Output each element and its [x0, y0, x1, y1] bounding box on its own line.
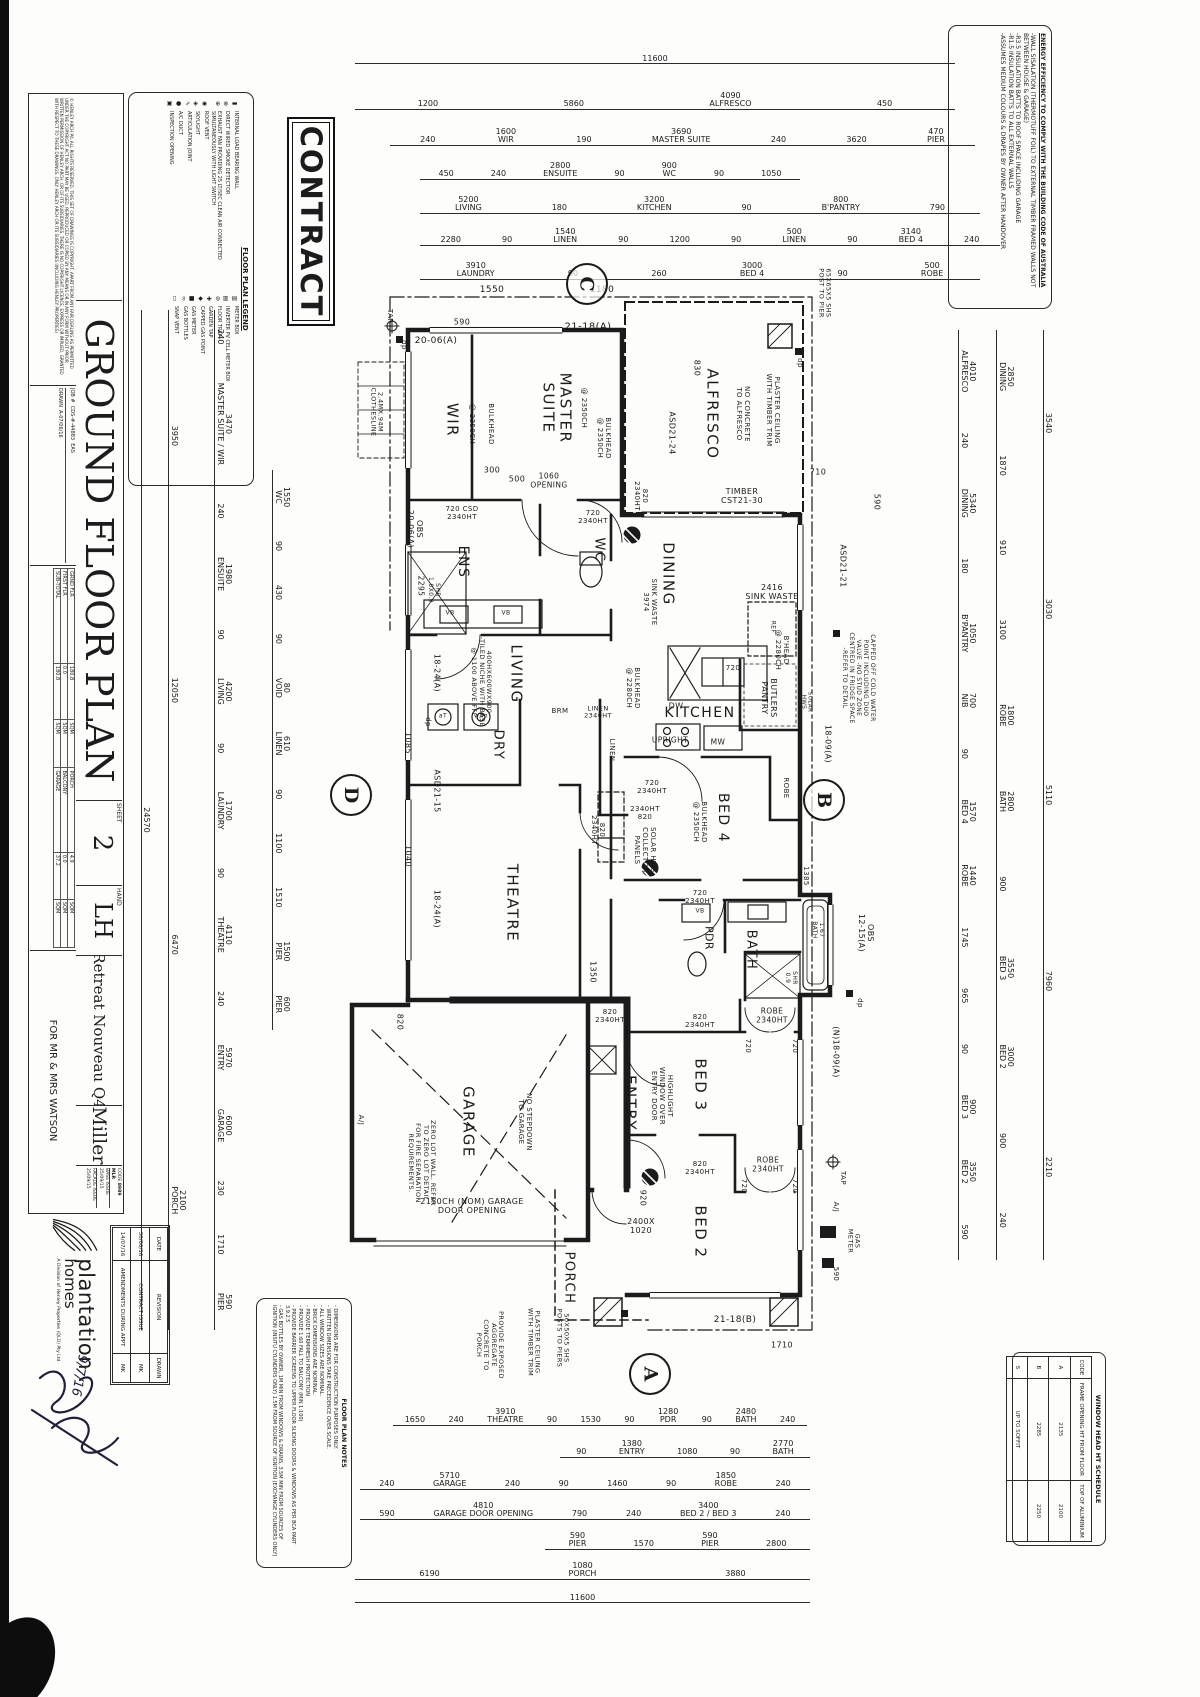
window-schedule-header: CODE — [1070, 1357, 1091, 1379]
plan-label: TAP — [386, 309, 394, 323]
dimension-label: 800 B'PANTRY — [820, 196, 862, 213]
plan-label: NO CONCRETE TO ALFRESCO — [735, 386, 751, 442]
section-marker-A: A — [629, 1353, 671, 1395]
plan-label: 820 2340HT — [595, 1008, 625, 1024]
inspection-icon: ▣ — [166, 99, 173, 108]
plan-label: WC — [591, 538, 606, 563]
dimension-chain: 11600 — [355, 1594, 810, 1603]
plan-label: w/m — [474, 714, 488, 721]
legend-item-label: GARDEN TAP — [206, 306, 212, 338]
dimension-label: 90 — [215, 741, 223, 755]
plan-label: ZERO LOT WALL. REFER TO ZERO LOT DETAIL … — [406, 1120, 436, 1206]
plan-label: 1.67 BATH — [810, 921, 824, 939]
plan-label: 1040 — [403, 845, 412, 867]
legend-item-label: EXHAUST FAN PROVIDING 25 LT/SEC CLEAN AI… — [209, 111, 221, 284]
revision-header: REVISION — [149, 1261, 167, 1354]
section-marker-letter: B — [813, 792, 835, 808]
dimension-label: 1700 LAUNDRY — [215, 790, 232, 832]
plan-label: ROBE 2340HT — [756, 1007, 788, 1024]
window-schedule-cell: B — [1028, 1357, 1049, 1379]
plan-label: BUTLERS PANTRY — [760, 678, 778, 717]
dimension-chain: 2405710 GARAGE240901460901850 ROBE240 — [360, 1472, 810, 1490]
dimension-label: 180 — [959, 556, 967, 575]
hand-value: LH — [91, 886, 115, 955]
legend-item: ◉ROOF VENT — [201, 99, 208, 284]
dimension-label: 3550 BED 3 — [997, 954, 1014, 982]
dimension-label: 1080 — [675, 1448, 699, 1456]
dimension-label: 90 — [215, 866, 223, 880]
plan-label: TIMBER CST21-30 — [721, 487, 763, 505]
area-cell: BALCONY — [61, 768, 68, 852]
dimension-label: 1540 LINEN — [551, 228, 579, 245]
dimension-label: 240 — [959, 431, 967, 450]
window-schedule-cell: UP TO SOFFIT — [1007, 1378, 1028, 1480]
plan-label: B'HEAD @ 2280CH — [774, 630, 790, 670]
legend-item-label: SKYLIGHT — [193, 111, 199, 135]
dimension-label: 3550 BED 2 — [959, 1158, 976, 1186]
plan-label: DRY — [490, 730, 505, 761]
window-schedule-cell: 2250 — [1028, 1481, 1049, 1542]
dimension-chain: 3910 LAUNDRY902603000 BED 490500 ROBE — [420, 262, 980, 280]
plan-label: 1350 — [588, 961, 597, 983]
capped-gas-icon: ◆ — [197, 294, 204, 303]
gas-meter-icon: ■ — [188, 294, 195, 303]
floor-trap-icon: ⊘ — [214, 294, 221, 303]
dimension-chain: 1550 WC904309080 VOID610 LINEN9011001510… — [272, 470, 290, 1030]
revision-header: DRAWN — [149, 1354, 167, 1383]
legend-item: ◆CAPPED GAS POINT — [197, 294, 204, 479]
dimension-label: 24570 — [142, 805, 150, 834]
dimension-label: 3000 BED 4 — [738, 262, 766, 279]
area-cell: SUB-TOTAL — [54, 569, 61, 664]
legend-item: ▮INTERNAL LOAD BEARING WALL — [231, 99, 238, 284]
dimension-label: 240 — [773, 1480, 792, 1488]
plan-label: DW — [669, 701, 684, 710]
plan-label: VB — [695, 909, 704, 916]
dimension-label: 90 — [616, 236, 630, 244]
plan-label: 500 — [509, 474, 525, 483]
dimension-label: 4810 GARAGE DOOR OPENING — [431, 1502, 535, 1519]
plan-label: ASD21-15 — [432, 769, 441, 812]
plan-label: 2340HT 820 — [630, 805, 660, 821]
floor-plan-sheet: CONTRACT FLOOR PLAN LEGEND ▮INTERNAL LOA… — [0, 0, 1200, 1697]
legend-item: ■GAS METER — [188, 294, 195, 479]
dimension-chain: 11600 — [355, 55, 955, 64]
plan-label: LIVING — [507, 644, 524, 703]
dimension-label: 965 — [959, 986, 967, 1005]
window-head-schedule: WINDOW HEAD HT SCHEDULE CODEFRAME OPENIN… — [1012, 1352, 1106, 1546]
plan-label: BULKHEAD @ 2280CH — [625, 667, 641, 708]
area-cell: 4.9 — [68, 852, 75, 899]
plan-label: 21-18(B) — [714, 1315, 757, 1325]
dimension-label: 3540 — [1044, 411, 1052, 435]
dimension-chain: 5904810 GARAGE DOOR OPENING7902403400 BE… — [360, 1502, 810, 1520]
section-marker-C: C — [566, 263, 608, 305]
section-marker-B: B — [803, 779, 845, 821]
dimension-label: 1080 PORCH — [567, 1562, 599, 1579]
plan-label: 720 — [791, 1039, 799, 1054]
contract-stamp: CONTRACT — [287, 117, 335, 326]
dimension-label: 3000 BED 2 — [997, 1042, 1014, 1070]
dimension-label: 4200 LIVING — [215, 676, 232, 707]
plan-label: OBS 12-15(A) — [857, 914, 875, 952]
dimension-chain: 2280901540 LINEN90120090500 LINEN903140 … — [420, 228, 1000, 246]
plan-label: 590 — [832, 1267, 840, 1282]
plan-label: NO STEPDOWN TO GARAGE — [517, 1093, 533, 1151]
plan-label: 2400X 1020 — [627, 1217, 655, 1235]
energy-note-title: ENERGY EFFICIENCY TO COMPLY WITH THE BUI… — [1038, 33, 1046, 301]
plan-label: ROBE 2340HT — [752, 1156, 784, 1173]
dimension-label: 3100 — [997, 618, 1005, 642]
dimension-label: 4010 ALFRESCO — [959, 348, 976, 394]
plan-label: A/J — [357, 1115, 365, 1125]
dimension-label: 1380 ENTRY — [617, 1440, 647, 1457]
legend-item-label: METER BOX — [232, 306, 238, 335]
plan-label: PLASTER CEILING WITH TIMBER TRIM — [526, 1308, 541, 1376]
floor-plan-note-line: PROVIDE 1:60 FALL TO BALCONY (MIN 1:100) — [297, 1305, 303, 1561]
plan-label: 20-06(A) — [415, 336, 458, 346]
client-name: FOR MR & MRS WATSON — [48, 1020, 59, 1142]
dimension-chain: 16502403910 THEATRE901530901280 PDR90248… — [393, 1408, 807, 1426]
skylight-icon: ◈ — [192, 99, 199, 108]
checked-by: EAS — [69, 443, 75, 453]
plan-label: BATH — [743, 930, 758, 971]
sheet-title: GROUND FLOOR PLAN — [77, 318, 121, 782]
base-issue-value: 25/09/15 — [98, 1168, 103, 1189]
plan-label: 2416 SINK WASTE — [745, 583, 798, 601]
plan-label: ASD21-24 — [667, 411, 676, 454]
plan-label: 710 — [810, 467, 826, 476]
plan-label: ASD21-21 — [838, 544, 847, 587]
gas-bottles-icon: ∞ — [179, 294, 186, 303]
plan-label: HIGHLIGHT WINDOW OVER ENTRY DOOR — [650, 1067, 674, 1125]
plan-label: ALFRESCO — [703, 369, 720, 460]
dimension-label: 11600 — [568, 1594, 597, 1602]
plan-label: VB — [501, 611, 510, 618]
dimension-label: 3140 BED 4 — [897, 228, 925, 245]
dimension-label: 90 — [845, 236, 859, 244]
plan-label: LINEN 2340HT — [584, 706, 612, 721]
plan-label: BED 3 — [691, 1058, 708, 1111]
dimension-label: 7960 — [1044, 969, 1052, 993]
contract-stamp-label: CONTRACT — [294, 126, 328, 318]
plan-label: 18-24(A) — [432, 654, 441, 692]
articulation-icon: ∿ — [184, 99, 191, 108]
dimension-label: 590 PIER — [215, 1291, 232, 1313]
window-schedule-title: WINDOW HEAD HT SCHEDULE — [1094, 1356, 1102, 1542]
dimension-label: 1050 — [759, 170, 783, 178]
section-marker-letter: D — [340, 787, 362, 803]
plan-label: MW — [711, 739, 726, 748]
dimension-label: 900 — [997, 874, 1005, 893]
dimension-label: 5200 LIVING — [453, 196, 484, 213]
dimension-label: 900 — [997, 1131, 1005, 1150]
floor-plan-note-line: DIMENSIONS ARE FOR CONSTRUCTION PURPOSES… — [332, 1305, 338, 1561]
dimension-label: 240 — [215, 501, 223, 520]
dimension-label: 3880 — [723, 1570, 747, 1578]
area-cell: 37.2 — [54, 852, 61, 899]
legend-item: ✚GARDEN TAP — [205, 294, 212, 479]
dimension-label: 1510 — [273, 885, 281, 909]
plan-label: BULKHEAD — [487, 403, 495, 444]
area-cell: 0.0 — [61, 663, 68, 719]
dimension-label: 1280 PDR — [656, 1408, 680, 1425]
plan-label: PROVIDE EXPOSED AGGREGATE CONCRETE TO PO… — [474, 1311, 504, 1379]
ac-duct-icon: ● — [175, 99, 182, 108]
dimension-chain: 61901080 PORCH3880 — [355, 1562, 810, 1580]
plan-label: 2.4MX.94M CLOTHESLINE — [369, 387, 384, 436]
fan-icon: ⊕ — [214, 99, 221, 108]
title-block-side: © HENLEY ARCH P/L ALL RIGHTS RESERVED. T… — [30, 95, 76, 1210]
dimension-label: 1100 — [273, 831, 281, 855]
dimension-label: 1570 — [632, 1540, 656, 1548]
legend-item-label: GAS METER — [189, 306, 195, 335]
floor-plan-note-line: GAS BOTTLES BY OWNER, 1M MIN FROM WINDOW… — [271, 1305, 283, 1561]
section-marker-letter: C — [576, 276, 598, 291]
plan-label: SINK WASTE 3974 — [642, 578, 658, 625]
drawn-label: DRAWN — [58, 388, 64, 407]
legend-item: ◈SKYLIGHT — [192, 99, 199, 284]
plan-label: BULKHEAD @ 2350CH — [596, 417, 612, 458]
facade-name: Miller — [88, 1106, 110, 1164]
dimension-label: 3030 — [1044, 597, 1052, 621]
facade-issue-label: FACADE ISSUE — [91, 1168, 96, 1201]
dimension-label: 2100 PORCH — [169, 1184, 186, 1216]
plan-label: WIR — [443, 403, 460, 437]
dimension-label: 430 — [273, 583, 281, 602]
plan-label: 720 — [740, 1179, 748, 1194]
dimension-label: 2480 BATH — [733, 1408, 758, 1425]
design-name: Retreat Nouveau Q4 — [90, 955, 108, 1105]
dimension-label: 1870 — [997, 453, 1005, 477]
dimension-label: 450 — [437, 170, 456, 178]
job-number: CDS-#-44883 — [69, 406, 75, 440]
dimension-label: 90 — [728, 1448, 742, 1456]
dimension-label: 90 — [557, 1480, 571, 1488]
dimension-chain: 120058604090 ALFRESCO450 — [355, 92, 955, 110]
window-schedule-cell: A — [1049, 1357, 1070, 1379]
plan-label: UPRIGHT — [652, 737, 688, 746]
dimension-chain: 35403030511079602210 — [1043, 330, 1052, 1260]
dimension-label: 1530 — [579, 1416, 603, 1424]
plan-label: @ 2350CH — [580, 388, 588, 428]
dimension-label: 610 LINEN — [273, 730, 290, 758]
plan-label: SHR 0.9 — [783, 971, 797, 985]
dimension-label: 3690 MASTER SUITE — [650, 128, 713, 145]
plan-label: aT — [439, 714, 447, 721]
area-cell: SQM — [61, 720, 68, 768]
plan-label: dp — [424, 717, 432, 727]
dimension-label: 1440 ROBE — [959, 862, 976, 888]
plan-label: 1085 — [403, 732, 412, 754]
plan-label: SOLAR HWS COLLECTOR PANELS — [633, 827, 657, 873]
dimension-label: 3200 KITCHEN — [635, 196, 674, 213]
area-cell: 0.0 — [61, 852, 68, 899]
dimension-label: 90 — [215, 628, 223, 642]
plan-label: BED 2 — [691, 1205, 708, 1258]
dimension-label: 910 — [997, 538, 1005, 557]
dimension-label: 240 — [769, 136, 788, 144]
plan-label: BULKHEAD @ 2350CH — [692, 801, 708, 842]
area-cell: FIRST FLR — [61, 569, 68, 664]
dimension-label: 240 — [997, 1211, 1005, 1230]
dimension-label: 240 — [503, 1480, 522, 1488]
area-cell: GARAGE — [54, 768, 61, 852]
legend-item-label: ROOF VENT — [202, 111, 208, 140]
dimension-label: 90 — [545, 1416, 559, 1424]
dimension-label: 240 — [962, 236, 981, 244]
drawn-value: A-07/06/16 — [58, 410, 64, 438]
dimension-chain: 2850 DINING187091031001800 ROBE2800 BATH… — [996, 330, 1014, 1260]
window-schedule-cell: 2135 — [1049, 1378, 1070, 1480]
dimension-label: 1200 — [668, 236, 692, 244]
energy-note-line: -ASSUMES MEDIUM COLOURS & DRAPES BY OWNE… — [998, 33, 1006, 301]
meter-box-icon: ▥ — [231, 294, 238, 303]
dimension-label: 240 — [418, 136, 437, 144]
dimension-label: 790 — [928, 204, 947, 212]
dimension-label: 90 — [574, 1448, 588, 1456]
dimension-label: 900 WC — [660, 162, 679, 179]
plan-label: GARAGE — [459, 1086, 476, 1158]
dimension-label: 240 — [215, 989, 223, 1008]
dimension-label: 2210 — [1044, 1155, 1052, 1179]
plan-label: 1060 OPENING — [530, 472, 567, 489]
dimension-label: 1460 — [605, 1480, 629, 1488]
plan-label: 50X50X5 SHS POSTS TO PIERS — [555, 1309, 570, 1368]
dimension-label: 3400 BED 2 / BED 3 — [678, 1502, 738, 1519]
dimension-label: 2280 — [439, 236, 463, 244]
floor-plan-notes: FLOOR PLAN NOTES DIMENSIONS ARE FOR CONS… — [256, 1298, 352, 1568]
dimension-label: 500 ROBE — [919, 262, 945, 279]
dimension-label: 700 NIB — [959, 691, 976, 710]
dimension-label: 1745 — [959, 925, 967, 949]
legend-item-label: A/C DUCT — [176, 111, 182, 135]
dimension-label: 2770 BATH — [770, 1440, 795, 1457]
dimension-label: 1550 WC — [273, 485, 290, 509]
legend-title: FLOOR PLAN LEGEND — [241, 99, 249, 479]
plan-label: 820 2340HT — [590, 815, 606, 845]
dimension-chain: 2401600 WIR1903690 MASTER SUITE240362047… — [390, 128, 975, 146]
dimension-label: 5340 DINING — [959, 487, 976, 520]
plan-label: DINING — [659, 542, 676, 605]
dimension-label: 500 LINEN — [780, 228, 808, 245]
legend-item: ⊗DIRECT WIRED SMOKE DETECTOR — [222, 99, 229, 284]
plan-label: GAS METER — [846, 1229, 861, 1253]
legend-item: ⊕EXHAUST FAN PROVIDING 25 LT/SEC CLEAN A… — [209, 99, 221, 284]
area-cell: SQM — [68, 720, 75, 768]
energy-note-line: -WALL SISALATION (THERMOTUFF FOIL) TO EX… — [1021, 33, 1036, 301]
dimension-label: 240 — [489, 170, 508, 178]
dimension-label: 260 — [649, 270, 668, 278]
dimension-label: 3910 LAUNDRY — [455, 262, 497, 279]
plan-label: 1550 — [480, 285, 505, 295]
plan-label: 21-18(A) — [565, 321, 612, 333]
floor-plan-note-line: PROVIDE TERMIMESH PROTECTION — [304, 1305, 310, 1561]
dimension-chain: 4010 ALFRESCO2405340 DINING1801050 B'PAN… — [958, 330, 976, 1260]
plan-label: 590 — [454, 317, 470, 326]
plan-label: 720 — [726, 664, 741, 672]
plan-label: dp — [856, 998, 864, 1008]
dimension-label: 90 — [959, 1042, 967, 1056]
dimension-chain: 5200 LIVING1803200 KITCHEN90800 B'PANTRY… — [420, 196, 980, 214]
dimension-label: 5110 — [1044, 783, 1052, 807]
dimension-label: 6470 — [169, 933, 177, 957]
dimension-label: 3620 — [844, 136, 868, 144]
plan-label: 820 2340HT — [633, 481, 649, 511]
window-schedule-cell: 2100 — [1049, 1481, 1070, 1542]
dimension-label: 3470 MASTER SUITE / WIR — [215, 381, 232, 467]
plan-label: 18-24(A) — [432, 890, 441, 928]
dimension-label: 900 BED 3 — [959, 1093, 976, 1121]
revision-header: DATE — [149, 1228, 167, 1261]
plan-label: 720 — [791, 1179, 799, 1194]
plan-label: 18-09(A) — [823, 725, 832, 763]
dimension-label: 90 — [712, 170, 726, 178]
area-cell: PORCH — [68, 768, 75, 852]
legend-item-label: DIRECT WIRED SMOKE DETECTOR — [224, 111, 230, 194]
title-block-main: GROUND FLOOR PLAN SHEET 2 HAND LH Retrea… — [76, 95, 122, 1210]
dimension-label: 1650 — [403, 1416, 427, 1424]
floor-plan-note-line: BRICK DIMENSIONS ARE NOMINAL. — [311, 1305, 317, 1561]
plan-label: A/J — [832, 1202, 840, 1212]
brand-block: plantation homes A Division of Henley Pr… — [28, 1212, 122, 1372]
dimension-label: 6000 GARAGE — [215, 1107, 232, 1145]
window-schedule-cell: S — [1007, 1357, 1028, 1379]
plan-label: 820 2340HT — [685, 1160, 715, 1176]
plan-label: 590 — [872, 494, 881, 510]
plan-label: 1710 — [771, 1340, 793, 1349]
dimension-label: 2800 ENSUITE — [541, 162, 579, 179]
floor-plan-note-line: PROVIDE BARRIER SCREENS TO UPPER FLOOR S… — [284, 1305, 296, 1561]
floor-plan-notes-title: FLOOR PLAN NOTES — [340, 1305, 347, 1561]
dimension-chain: 590 PIER1570590 PIER2800 — [545, 1532, 810, 1550]
area-cell: 180.8 — [54, 663, 61, 719]
legend-item-label: INTERNAL LOAD BEARING WALL — [232, 111, 238, 189]
plan-label: PLASTER CEILING WITH TIMBER TRIM — [765, 373, 781, 446]
dimension-label: 1850 ROBE — [713, 1472, 739, 1489]
dimension-label: 1500 PIER — [273, 939, 290, 963]
floor-plan-note-line: WRITTEN DIMENSIONS TAKE PRECEDENCE OVER … — [325, 1305, 331, 1561]
sheet-number: 2 — [89, 801, 115, 885]
dimension-label: 90 — [835, 270, 849, 278]
dimension-label: 590 — [377, 1510, 396, 1518]
dimension-chain: 2403470 MASTER SUITE / WIR2401980 ENSUIT… — [214, 310, 232, 1330]
code-label: CODE — [116, 1168, 121, 1181]
base-issue-label: BASE ISSUE — [104, 1168, 109, 1195]
dimension-chain: 4502402800 ENSUITE90900 WC901050 — [420, 162, 800, 180]
dimension-label: 90 — [700, 1416, 714, 1424]
plan-label: @ 2350CH — [468, 404, 476, 444]
legend-item-label: INSPECTION OPENING — [168, 111, 174, 165]
plan-label: THEATRE — [503, 864, 520, 943]
facade-issue-value: 25/09/15 — [85, 1168, 90, 1189]
dimension-label: 90 — [500, 236, 514, 244]
plan-label: ENTRY — [621, 1075, 638, 1131]
dimension-label: 90 — [739, 204, 753, 212]
dimension-label: 240 — [446, 1416, 465, 1424]
plan-label: 720 — [744, 1039, 752, 1054]
dimension-label: 12050 — [169, 676, 177, 705]
dimension-label: 2850 DINING — [997, 360, 1014, 393]
dimension-label: 5710 GARAGE — [431, 1472, 469, 1489]
dimension-label: 3950 — [169, 424, 177, 448]
dimension-label: 600 PIER — [273, 993, 290, 1015]
dimension-label: 1200 — [416, 100, 440, 108]
plan-label: PORCH — [561, 1252, 576, 1305]
legend-item-label: ARTICULATION JOINT — [185, 111, 191, 162]
section-marker-D: D — [330, 774, 372, 816]
section-marker-letter: A — [639, 1367, 661, 1382]
